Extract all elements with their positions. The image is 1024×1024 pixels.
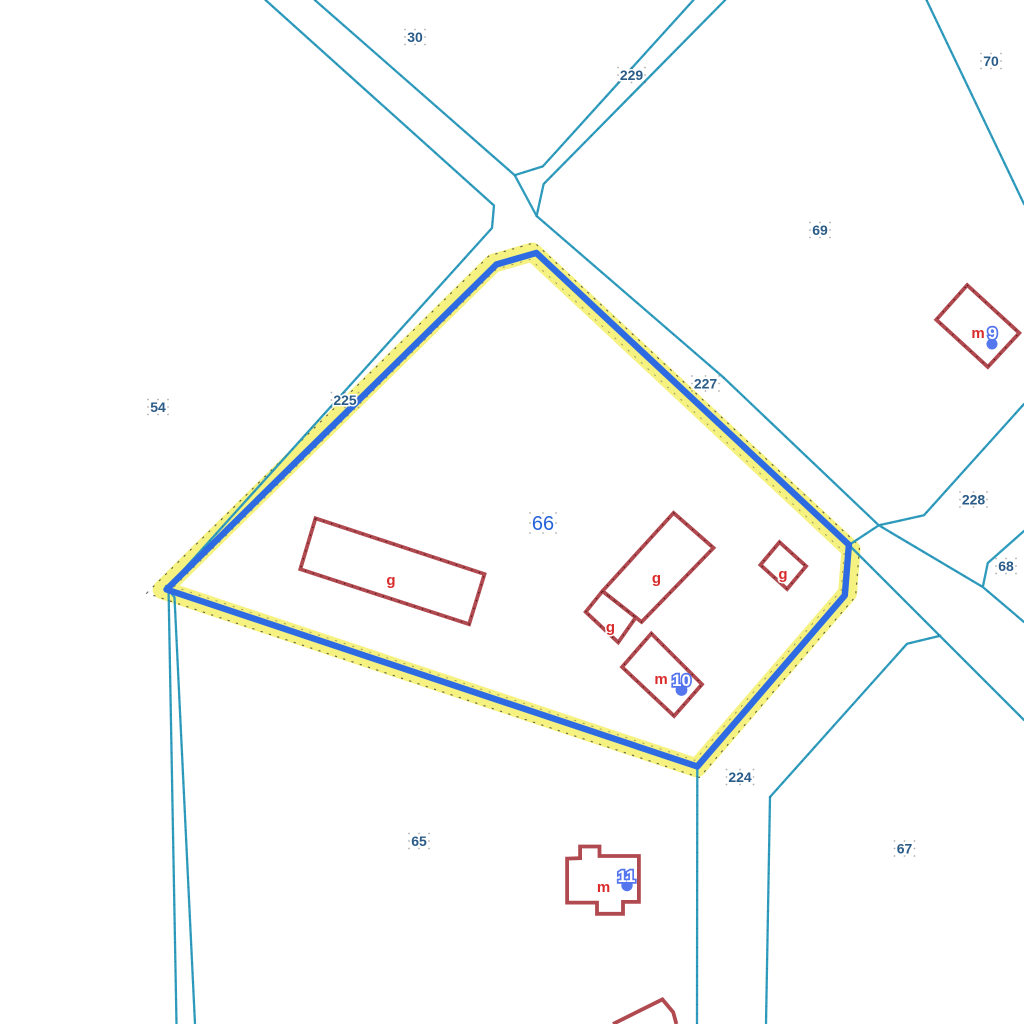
svg-text:228: 228: [962, 492, 986, 508]
svg-text:224: 224: [728, 769, 752, 785]
svg-text:m: m: [654, 671, 667, 688]
svg-text:30: 30: [407, 29, 423, 45]
svg-text:70: 70: [983, 53, 999, 69]
svg-text:68: 68: [998, 558, 1014, 574]
svg-text:m: m: [971, 325, 984, 342]
svg-text:54: 54: [150, 399, 166, 415]
svg-text:m: m: [597, 879, 610, 896]
svg-text:g: g: [652, 570, 661, 587]
svg-text:g: g: [606, 619, 615, 636]
svg-text:229: 229: [620, 67, 644, 83]
svg-text:66: 66: [532, 513, 554, 535]
svg-text:225: 225: [333, 392, 357, 408]
svg-text:9: 9: [988, 324, 997, 343]
svg-text:69: 69: [812, 222, 828, 238]
svg-text:65: 65: [411, 833, 427, 849]
svg-text:11: 11: [618, 867, 636, 886]
svg-text:227: 227: [694, 376, 718, 392]
svg-text:g: g: [386, 572, 395, 589]
svg-text:10: 10: [672, 671, 691, 690]
svg-text:67: 67: [897, 841, 913, 857]
svg-text:g: g: [778, 566, 787, 583]
